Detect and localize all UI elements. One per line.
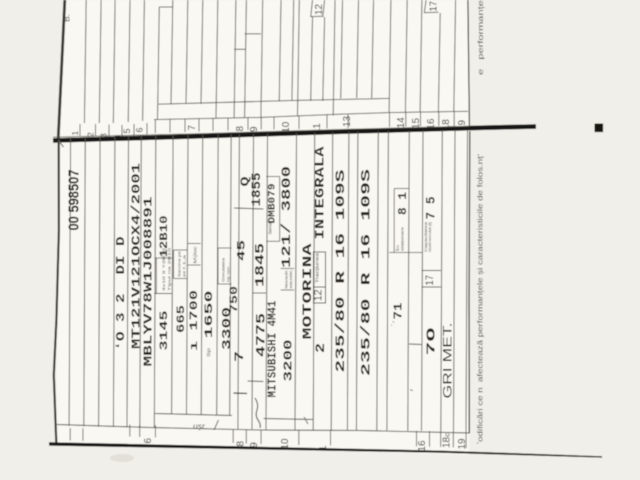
svg-text:1855: 1855 [250, 173, 264, 207]
svg-text:DMB079: DMB079 [268, 184, 279, 224]
svg-text:235/80 R 16 109S: 235/80 R 16 109S [360, 168, 374, 376]
svg-text:Mijloc: Mijloc [193, 245, 198, 263]
svg-text:ı 1700: ı 1700 [189, 290, 201, 351]
svg-text:121/ 3800: 121/ 3800 [280, 166, 294, 268]
svg-text:3145: 3145 [159, 310, 171, 351]
svg-text:eł f.1,a: eł f.1,a [182, 254, 187, 277]
svg-text:rezervorului (l): rezervorului (l) [427, 221, 432, 252]
svg-text:Tracțiunea: Tracțiunea [315, 252, 320, 283]
svg-text:,: , [406, 387, 415, 392]
svg-text:6: 6 [135, 127, 145, 132]
svg-text:13: 13 [342, 115, 353, 127]
svg-text:MOTORINA: MOTORINA [300, 243, 315, 339]
svg-text:71: 71 [392, 303, 406, 320]
svg-text:MITSUBISHI 4M41: MITSUBISHI 4M41 [266, 301, 280, 398]
svg-text:2: 2 [314, 343, 328, 353]
svg-text:B.: B. [63, 14, 72, 22]
svg-text:750: 750 [229, 286, 241, 313]
svg-text:Puterea max (kW): Puterea max (kW) [284, 270, 288, 288]
svg-text:staționare: staționare [400, 226, 405, 251]
svg-text:ușr.: ușr. [193, 421, 207, 431]
svg-text:ʼodificări ce n afectează per: ʼodificări ce n afectează performanțele … [475, 153, 484, 444]
svg-text:7: 7 [233, 351, 247, 362]
svg-text:8: 8 [235, 126, 246, 132]
svg-text:GRI MET.: GRI MET. [441, 323, 455, 399]
svg-text:6: 6 [143, 438, 154, 444]
svg-text:665: 665 [176, 304, 188, 333]
svg-text:1650: 1650 [204, 290, 216, 338]
svg-text:9: 9 [249, 126, 260, 132]
svg-text:235/80 R 16 109S: 235/80 R 16 109S [334, 169, 348, 373]
svg-text:7O: 7O [424, 328, 438, 356]
svg-text:14: 14 [396, 117, 407, 129]
svg-text:00 598507: 00 598507 [66, 170, 82, 231]
svg-text:45: 45 [237, 239, 249, 261]
svg-text:INTEGRALA: INTEGRALA [313, 146, 328, 239]
svg-text:17: 17 [429, 1, 440, 12]
svg-text:·,: ·, [389, 320, 396, 327]
svg-text:5: 5 [122, 128, 132, 133]
svg-text:18: 18 [442, 436, 453, 448]
svg-text:8: 8 [236, 441, 247, 447]
svg-text:turația (rot/min): turația (rot/min) [289, 270, 293, 289]
svg-text:7: 7 [187, 125, 198, 131]
svg-text:19: 19 [457, 438, 468, 450]
svg-text:7 5: 7 5 [424, 196, 439, 219]
svg-text:Hp rem…: Hp rem… [226, 262, 231, 282]
svg-text:e performanțele ș: e performanțele ș [478, 0, 485, 75]
svg-text:Sp: Sp [206, 348, 212, 357]
svg-text:ʻO 3 2 DI D: ʻO 3 2 DI D [114, 237, 128, 351]
svg-text:17: 17 [424, 275, 436, 286]
svg-text:12B10: 12B10 [159, 216, 171, 258]
svg-text:MBLYV78W1J008891: MBLYV78W1J008891 [142, 197, 156, 367]
svg-text:3200: 3200 [282, 340, 296, 382]
svg-text:8 1: 8 1 [396, 192, 410, 215]
svg-text:12: 12 [314, 4, 325, 15]
svg-text:1: 1 [70, 131, 80, 136]
svg-text:c: c [442, 433, 451, 437]
svg-text:16: 16 [417, 440, 428, 452]
svg-text:1845: 1845 [253, 243, 268, 287]
